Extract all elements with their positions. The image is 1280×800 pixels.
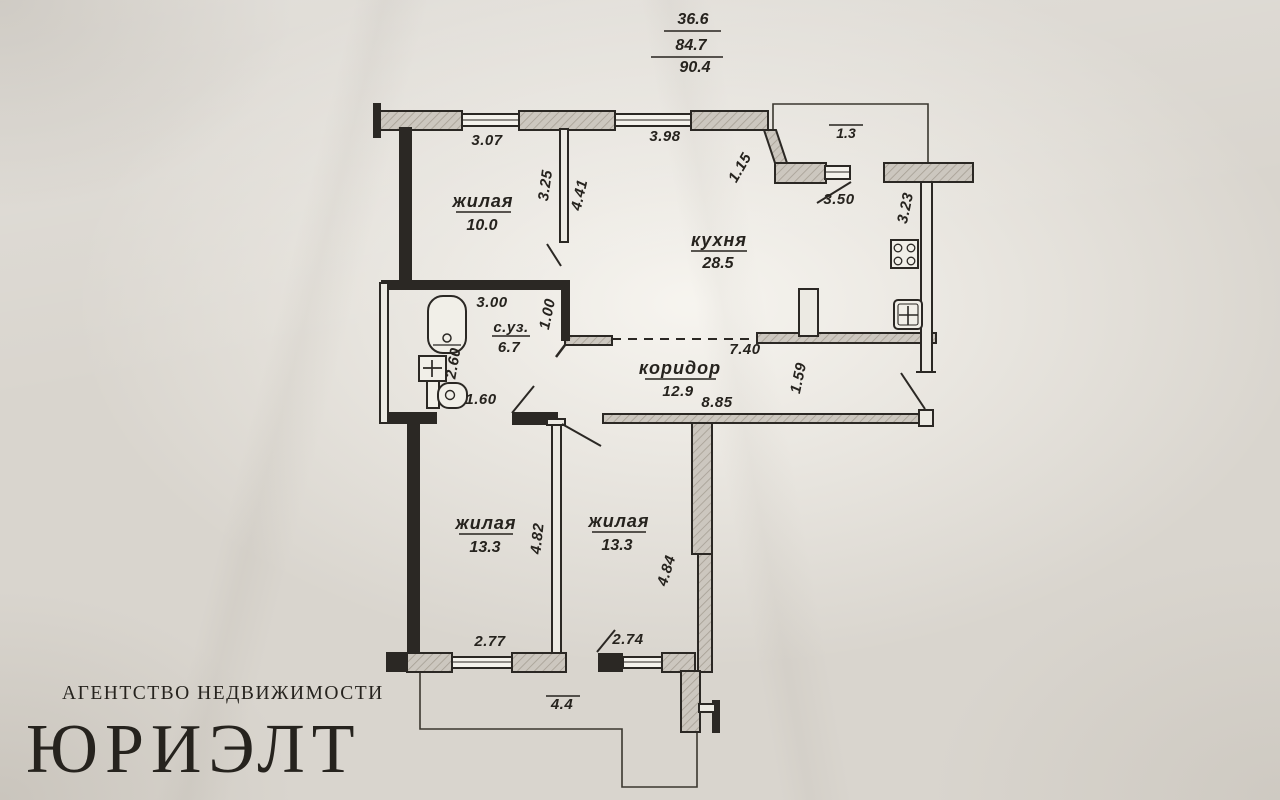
bathroom-north-wall	[381, 280, 565, 290]
room2-room3-partition	[552, 424, 561, 653]
dim-kitchen-wall-diag: 1.15	[725, 150, 755, 186]
dim-top-room1: 3.07	[471, 132, 502, 149]
dim-corridor-bottom: 8.85	[701, 394, 732, 411]
bathroom-name: с.уз.	[493, 319, 528, 336]
dim-top-kitchen: 3.98	[649, 128, 680, 145]
summary-total-with-balcony: 90.4	[679, 59, 710, 76]
dim-room3-window: 2.74	[611, 631, 643, 648]
wall	[681, 671, 700, 732]
wall	[662, 653, 695, 672]
wall-tick	[556, 345, 565, 357]
left-shaft-wall	[380, 283, 388, 423]
dim-bathroom-door: 1.60	[465, 391, 496, 408]
wall	[757, 333, 936, 343]
wall	[884, 163, 973, 182]
entrance-door-swing	[901, 373, 925, 409]
room3-name: жилая	[587, 511, 649, 531]
wall	[698, 554, 712, 672]
dim-kitchen-entry: 1.00	[536, 297, 559, 331]
door-swing	[547, 244, 561, 266]
wall-stub	[699, 704, 715, 712]
room1-name: жилая	[451, 191, 513, 211]
room2-area: 13.3	[469, 539, 500, 556]
kitchen-name: кухня	[691, 230, 747, 250]
corridor-area: 12.9	[662, 383, 693, 400]
corridor-name: коридор	[639, 358, 721, 378]
dim-kitchen-right-wall: 3.23	[894, 191, 917, 225]
dim-bathroom-width: 3.00	[476, 294, 507, 311]
dim-corridor-top: 7.40	[729, 341, 760, 358]
kitchen-area: 28.5	[701, 255, 734, 272]
wall	[519, 111, 615, 130]
summary-total-area: 84.7	[675, 37, 707, 54]
room1-kitchen-partition	[560, 129, 568, 242]
balcony-bottom-outline	[420, 673, 697, 787]
dim-room3-depth: 4.84	[654, 553, 680, 589]
wall	[407, 653, 452, 672]
dim-corridor-width: 1.59	[787, 361, 810, 395]
agency-name: ЮРИЭЛТ	[26, 711, 361, 788]
wall	[399, 127, 412, 282]
wall	[380, 111, 462, 130]
room3-area: 13.3	[601, 537, 632, 554]
dim-kitchen-balcony-wall: 3.50	[823, 191, 854, 208]
stove-icon	[891, 240, 918, 268]
wall-diagonal	[764, 130, 787, 163]
entrance-wall-cap	[919, 410, 933, 426]
dim-room2-window: 2.77	[473, 633, 505, 650]
vent-shaft	[799, 289, 818, 336]
agency-logo: АГЕНТСТВО НЕДВИЖИМОСТИ ЮРИЭЛТ	[26, 683, 384, 788]
scan-page: 36.6 84.7 90.4 жилая 10.0 кухня 28.5 с.у…	[0, 0, 1280, 800]
wall	[565, 336, 612, 345]
room1-area: 10.0	[466, 217, 497, 234]
agency-tagline: АГЕНТСТВО НЕДВИЖИМОСТИ	[62, 683, 384, 704]
kitchen-east-wall	[921, 182, 932, 372]
dim-room2-depth: 4.82	[527, 522, 547, 556]
dim-balcony-bottom: 4.4	[550, 696, 574, 713]
wall	[692, 423, 712, 554]
room2-west-wall	[407, 424, 420, 653]
bathtub-icon	[428, 296, 466, 353]
wall	[512, 653, 566, 672]
door-swing	[562, 424, 601, 446]
door-swing	[512, 386, 534, 413]
summary-living-area: 36.6	[677, 11, 708, 28]
bathroom-east-wall	[561, 280, 570, 341]
wall-cap	[373, 103, 381, 138]
wall-cap	[386, 652, 407, 672]
toilet-icon	[427, 381, 467, 408]
floor-plan-svg: 36.6 84.7 90.4 жилая 10.0 кухня 28.5 с.у…	[0, 0, 1280, 800]
corridor-south-wall	[603, 414, 923, 423]
kitchen-sink-icon	[894, 300, 922, 329]
wall	[775, 163, 826, 183]
wall-jamb	[598, 653, 623, 672]
dim-room1-width: 3.25	[535, 169, 556, 202]
room2-name: жилая	[454, 513, 516, 533]
bathroom-area: 6.7	[498, 339, 521, 356]
dim-room1-depth: 4.41	[568, 178, 592, 213]
dim-balcony-top: 1.3	[836, 125, 856, 141]
wall	[691, 111, 768, 130]
